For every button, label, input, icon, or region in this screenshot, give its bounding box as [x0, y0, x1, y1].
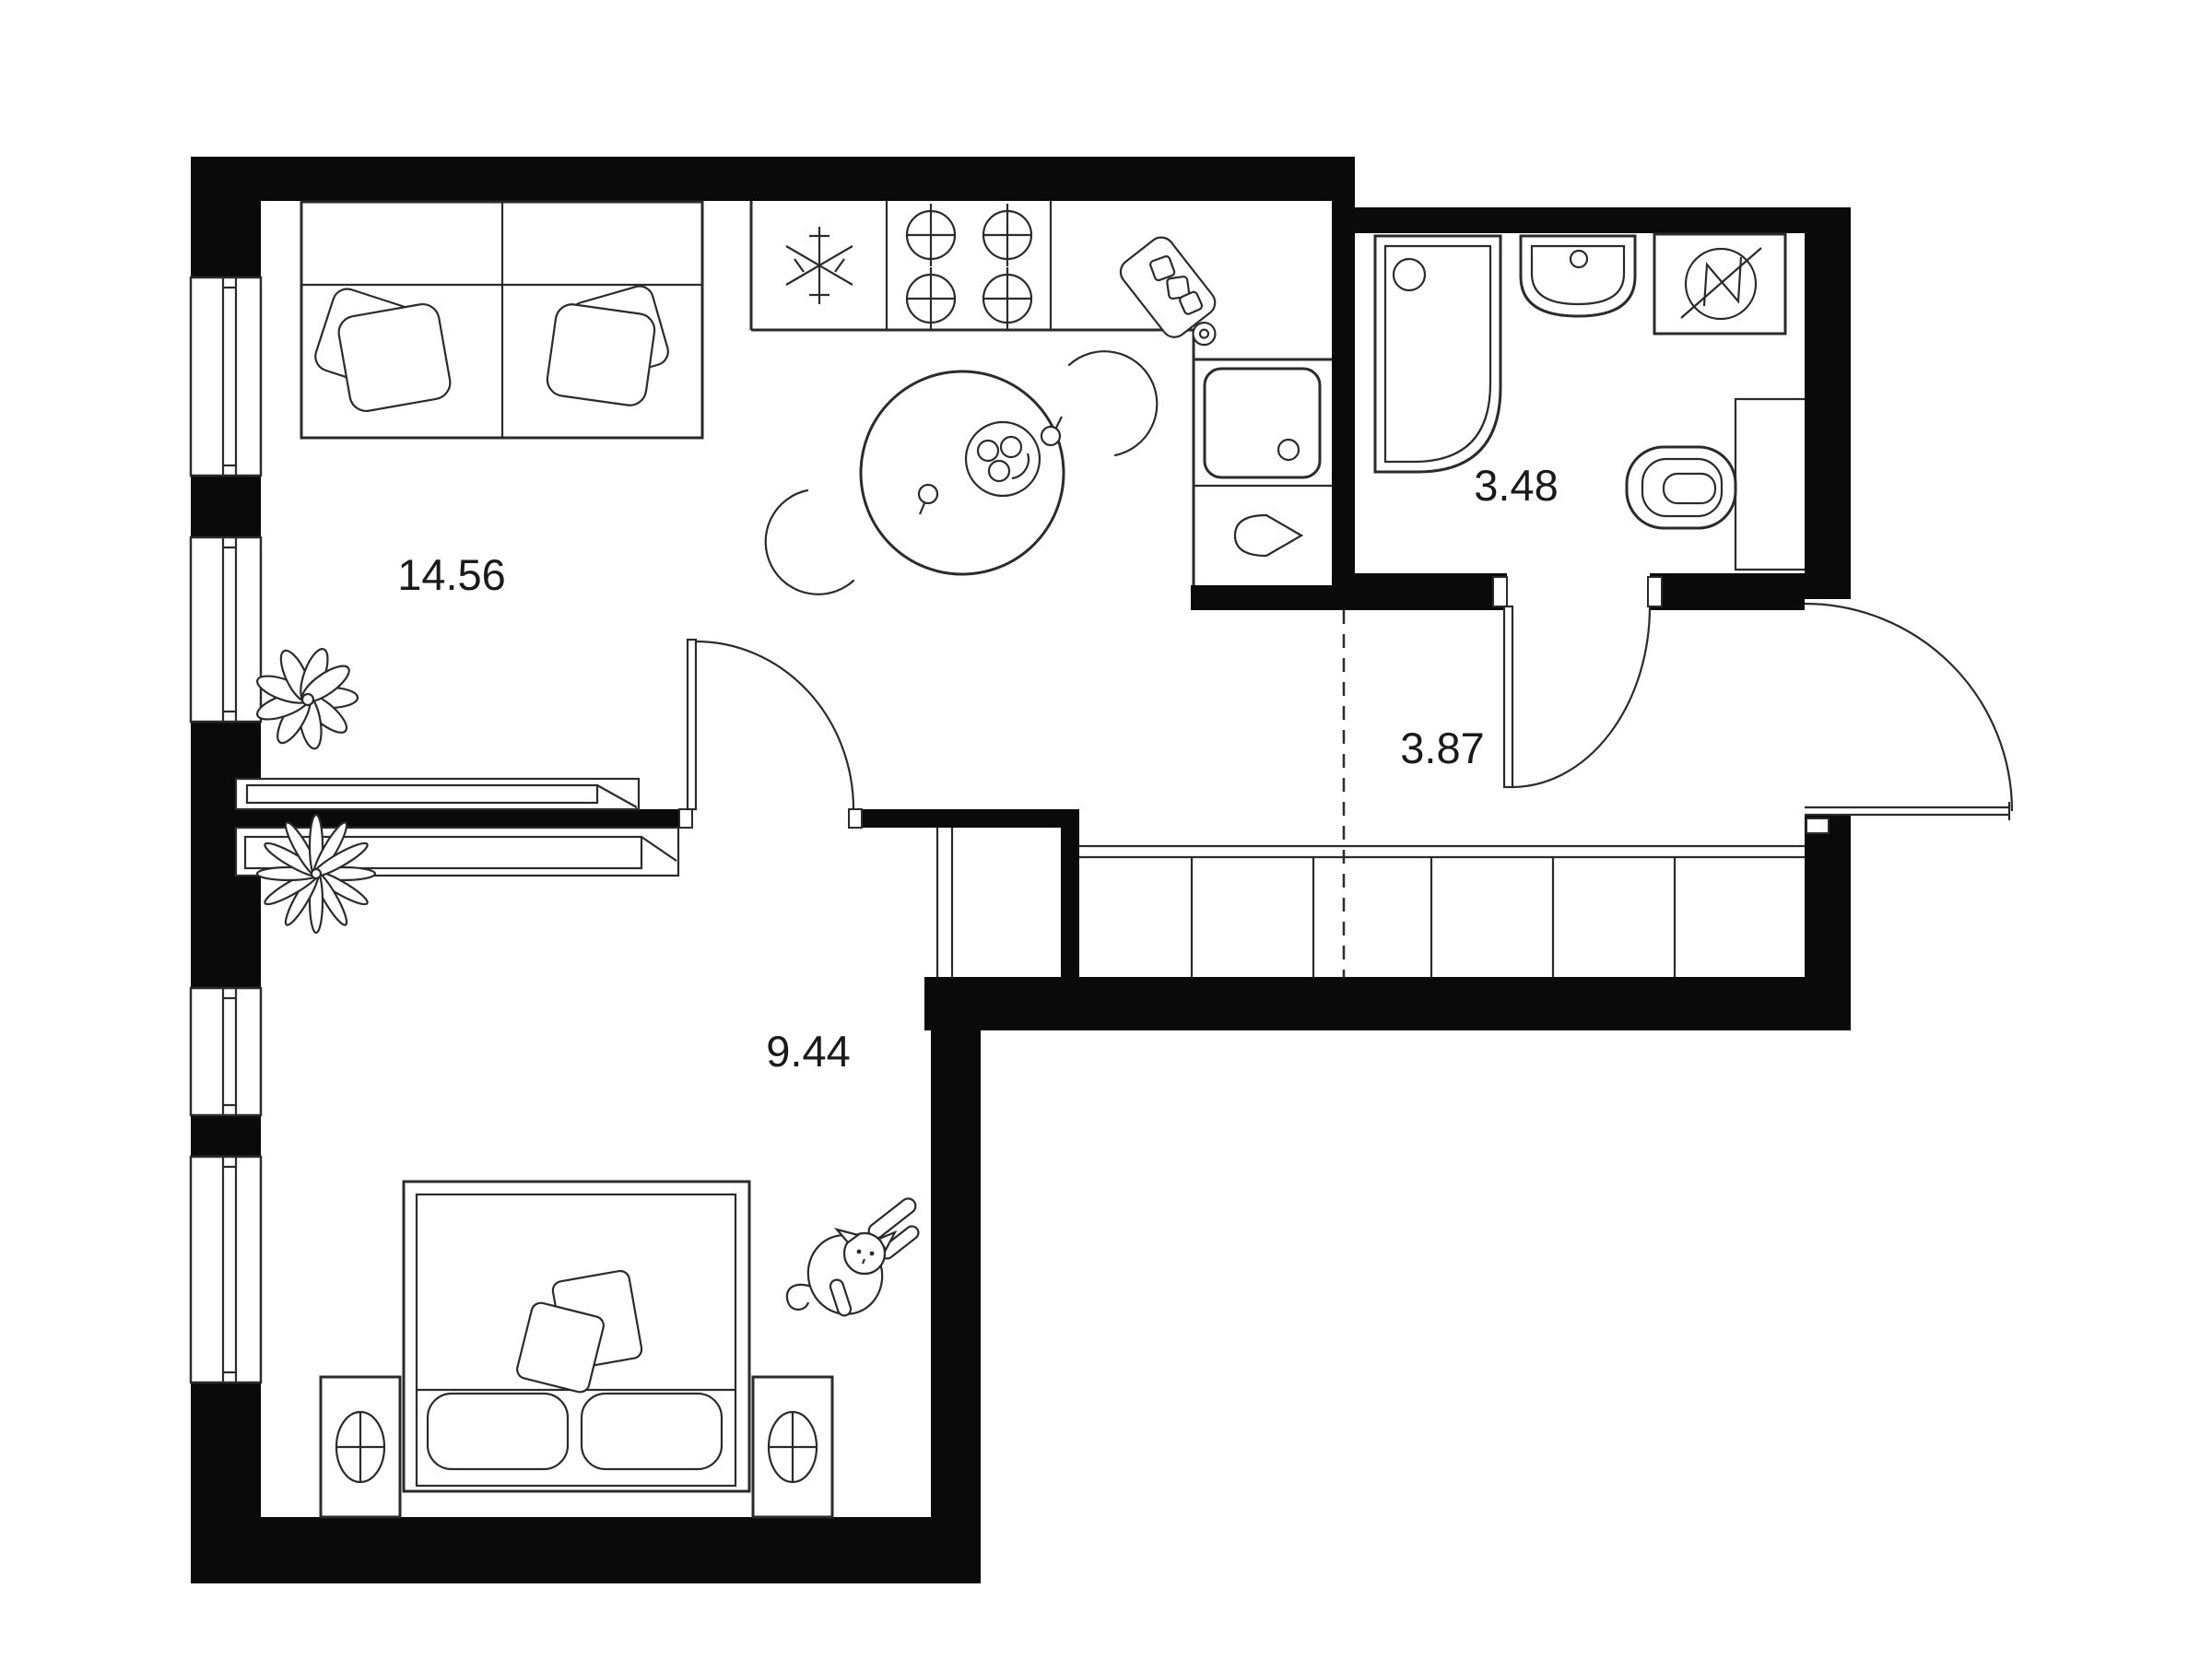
shower-cabin	[1375, 236, 1500, 472]
label-bedroom-area: 9.44	[766, 1027, 850, 1076]
wall-right-bathroom	[1805, 207, 1851, 599]
washing-machine-icon	[1654, 234, 1785, 334]
bedroom-door-jamb-right	[849, 809, 862, 828]
wall-top-bathroom	[1338, 207, 1851, 233]
wall-bedroom-right	[931, 977, 981, 1517]
wall-partition-kitchen-bath	[1332, 201, 1355, 581]
entrance-door	[1805, 604, 2012, 833]
sink-drop-icon	[1235, 515, 1301, 556]
wash-basin	[1521, 236, 1635, 316]
burner	[983, 267, 1031, 330]
bathroom-door-leaf	[1504, 606, 1512, 787]
duct-box	[1735, 399, 1805, 570]
window-living-1	[191, 277, 261, 476]
entrance-door-arc	[1805, 604, 2012, 811]
bed-pillow-left	[428, 1394, 568, 1469]
wall-top-living	[191, 157, 1355, 201]
label-hallway-area: 3.87	[1400, 724, 1484, 772]
wall-left-1	[191, 157, 261, 277]
toilet	[1627, 447, 1735, 528]
wall-wardrobe-pier	[1061, 828, 1079, 977]
plant-icon-living	[254, 646, 358, 750]
burner	[907, 267, 955, 330]
stove-burners-icon	[907, 204, 1031, 330]
wall-bath-bottom-right	[1650, 573, 1805, 610]
bedroom	[257, 815, 921, 1517]
wall-partition-bedroom-left	[261, 809, 679, 828]
bedroom-door-arc	[696, 641, 853, 809]
wall-kitchen-stub	[1191, 585, 1355, 610]
nightstand-right	[753, 1377, 832, 1517]
doors	[679, 577, 2012, 833]
chair-top-right	[1069, 351, 1157, 455]
label-bathroom-area: 3.48	[1474, 461, 1558, 510]
window-bedroom-2	[191, 1157, 261, 1382]
wall-left-2	[191, 476, 261, 537]
wall-bath-bottom-left	[1332, 573, 1507, 610]
bedroom-door-jamb-left	[679, 809, 692, 828]
wall-left-5	[191, 1382, 261, 1583]
nightstand-left	[321, 1377, 400, 1517]
chair-bottom-left	[766, 490, 853, 594]
wall-partition-bedroom-right	[862, 809, 1079, 828]
entrance-door-jamb	[1806, 818, 1829, 833]
bathroom-door-arc	[1512, 606, 1650, 787]
bed-pillow-right	[582, 1394, 722, 1469]
cutting-board-icon	[1115, 232, 1235, 361]
floor-plan-drawing: 14.56 3.48 3.87 9.44	[0, 0, 2212, 1659]
wall-hall-bottom	[924, 977, 1851, 1030]
fridge-snowflake-icon	[786, 227, 853, 304]
sofa-with-pillows	[301, 202, 702, 438]
bathroom	[1375, 234, 1805, 570]
label-living-area: 14.56	[397, 550, 506, 599]
burner	[983, 204, 1031, 266]
double-bed	[404, 1182, 749, 1491]
window-bedroom-1	[191, 988, 261, 1115]
cup	[1041, 427, 1060, 445]
dining-table-with-chairs	[766, 351, 1158, 594]
kitchen-sink	[1194, 369, 1332, 556]
bedroom-door-leaf	[688, 640, 696, 809]
wall-left-4	[191, 1115, 261, 1157]
floor-plan-canvas: 14.56 3.48 3.87 9.44	[0, 0, 2212, 1659]
cat-icon	[787, 1195, 921, 1322]
window-living-2	[191, 537, 261, 722]
wardrobe-cells	[1079, 846, 1805, 977]
bathroom-door	[1493, 577, 1662, 787]
burner	[907, 204, 955, 266]
bathroom-door-jamb-left	[1493, 577, 1507, 606]
bedroom-door	[679, 640, 862, 828]
bathroom-door-jamb-right	[1648, 577, 1662, 606]
bedroom-niche-wall	[937, 828, 952, 977]
wall-bedroom-bottom	[191, 1517, 981, 1583]
cup	[919, 485, 937, 503]
